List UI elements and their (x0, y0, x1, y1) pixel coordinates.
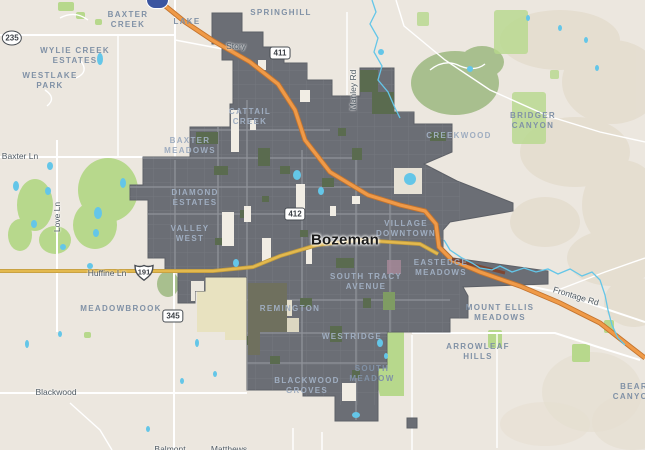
route-shield-345: 345 (162, 310, 183, 323)
neighborhood-label-valley-west: VALLEY WEST (171, 224, 210, 244)
neighborhood-label-bridger-canyon: BRIDGER CANYON (510, 111, 556, 131)
neighborhood-label-westridge: WESTRIDGE (322, 332, 382, 342)
route-shield-411: 411 (270, 47, 291, 60)
map-labels-layer: BAXTER CREEKLAKESPRINGHILLWYLIE CREEK ES… (0, 0, 645, 450)
neighborhood-label-arrowleaf-hills: ARROWLEAF HILLS (446, 342, 510, 362)
road-label-love-ln: Love Ln (52, 202, 62, 232)
route-shield-191: 191 (138, 268, 151, 276)
city-label: Bozeman (311, 232, 379, 249)
road-label-story: Story (226, 41, 246, 51)
road-label-blackwood: Blackwood (35, 387, 76, 397)
neighborhood-label-diamond-estates: DIAMOND ESTATES (171, 188, 218, 208)
map-canvas[interactable]: BAXTER CREEKLAKESPRINGHILLWYLIE CREEK ES… (0, 0, 645, 450)
neighborhood-label-eastedge-meadows: EASTEDGE MEADOWS (414, 258, 468, 278)
neighborhood-label-south-tracy-avenue: SOUTH TRACY AVENUE (330, 272, 402, 292)
road-label-balmont: Balmont (154, 444, 185, 450)
neighborhood-label-south-meadow: SOUTH MEADOW (349, 364, 394, 384)
neighborhood-label-springhill: SPRINGHILL (250, 8, 311, 18)
route-shield-235: 235 (2, 31, 22, 46)
neighborhood-label-village-downtown: VILLAGE DOWNTOWN (376, 219, 436, 239)
neighborhood-label-meadowbrook: MEADOWBROOK (80, 304, 161, 314)
route-shield-412: 412 (284, 208, 305, 221)
neighborhood-label-mount-ellis-meadows: MOUNT ELLIS MEADOWS (466, 303, 535, 323)
road-label-baxter-ln: Baxter Ln (2, 151, 38, 161)
neighborhood-label-creekwood: CREEKWOOD (426, 131, 491, 141)
neighborhood-label-baxter-meadows: BAXTER MEADOWS (164, 136, 216, 156)
neighborhood-label-westlake-park: WESTLAKE PARK (22, 71, 77, 91)
neighborhood-label-remington: REMINGTON (260, 304, 320, 314)
road-label-huffine-ln: Huffine Ln (88, 268, 127, 278)
neighborhood-label-bear-canyon: BEAR CANYON (613, 382, 645, 402)
road-label-frontage-rd: Frontage Rd (552, 284, 600, 307)
neighborhood-label-blackwood-groves: BLACKWOOD GROVES (274, 376, 339, 396)
neighborhood-label-baxter-creek: BAXTER CREEK (108, 10, 149, 30)
road-label-matthews: Matthews (211, 444, 247, 450)
neighborhood-label-lake: LAKE (174, 17, 201, 27)
road-label-manley-rd: Manley Rd (348, 70, 358, 111)
neighborhood-label-cattail-creek: CATTAIL CREEK (229, 107, 271, 127)
neighborhood-label-wylie-creek-estates: WYLIE CREEK ESTATES (40, 46, 110, 66)
